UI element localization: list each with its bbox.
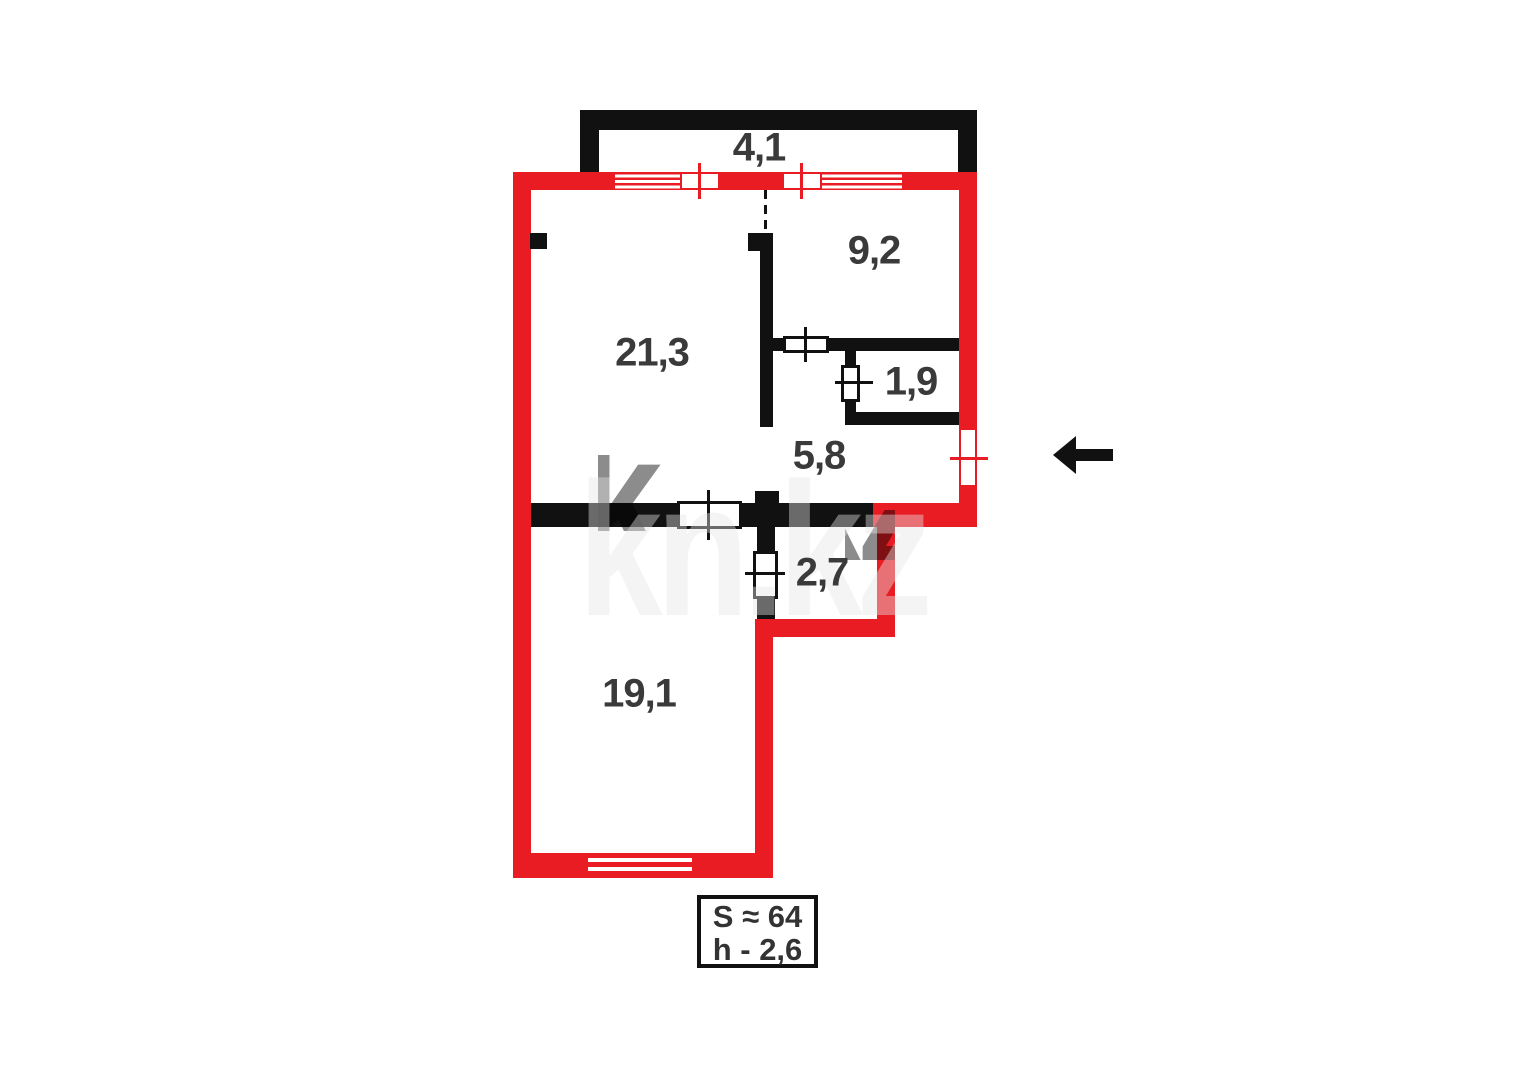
entrance-arrow-shaft xyxy=(1075,449,1113,461)
outer-wall-right-upper xyxy=(959,172,977,428)
watermark-text-highlight: kn.kz xyxy=(578,455,926,645)
bathroom-wall-left-upper xyxy=(845,338,856,367)
bathroom-door-tick xyxy=(835,381,873,384)
floorplan-canvas: 4,1 9,2 21,3 1,9 5,8 2,7 19,1 S ≈ 64 h -… xyxy=(0,0,1516,1080)
bedroom-door-tick xyxy=(707,490,710,540)
living-kitchen-divider-wall xyxy=(760,233,773,427)
balcony-door-tick-right xyxy=(800,163,803,199)
opening-dashed-line xyxy=(764,190,767,233)
balcony-wall-left xyxy=(580,110,599,172)
bedroom-wall-right xyxy=(755,619,773,878)
room-label-kitchen: 9,2 xyxy=(848,229,901,274)
storage-wall-right xyxy=(877,503,895,637)
balcony-window-right xyxy=(822,172,902,190)
watermark-text: kn.kz xyxy=(578,455,926,645)
entrance-arrow-icon xyxy=(1053,436,1076,474)
room-label-bathroom: 1,9 xyxy=(885,360,938,405)
balcony-wall-right xyxy=(958,110,977,172)
middle-wall-left xyxy=(531,503,677,527)
storage-wall-left-upper xyxy=(757,527,775,553)
balcony-door-tick-left xyxy=(698,163,701,199)
storage-wall-left-lower xyxy=(757,597,775,619)
room-label-storage: 2,7 xyxy=(796,551,849,596)
middle-wall-right xyxy=(742,503,873,527)
outer-wall-top xyxy=(513,172,977,190)
storage-door-tick xyxy=(745,572,785,575)
room-label-bedroom: 19,1 xyxy=(602,672,676,717)
balcony-window-left xyxy=(615,172,682,190)
entrance-door-tick xyxy=(950,457,988,460)
bathroom-wall-bottom xyxy=(845,412,959,425)
room-label-balcony: 4,1 xyxy=(733,126,786,171)
middle-wall-junction-cap xyxy=(755,491,779,503)
storage-wall-bottom xyxy=(755,619,895,637)
info-total-area: S ≈ 64 xyxy=(701,900,814,933)
info-box: S ≈ 64 h - 2,6 xyxy=(697,895,818,968)
storage-door-frame xyxy=(753,551,778,599)
bedroom-window xyxy=(588,853,692,878)
info-ceiling-height: h - 2,6 xyxy=(701,933,814,966)
room-label-hallway: 5,8 xyxy=(793,434,846,479)
outer-wall-left xyxy=(513,172,531,878)
living-room-pilaster xyxy=(530,233,547,249)
room-label-living-room: 21,3 xyxy=(615,331,689,376)
kitchen-door-tick xyxy=(804,327,807,362)
